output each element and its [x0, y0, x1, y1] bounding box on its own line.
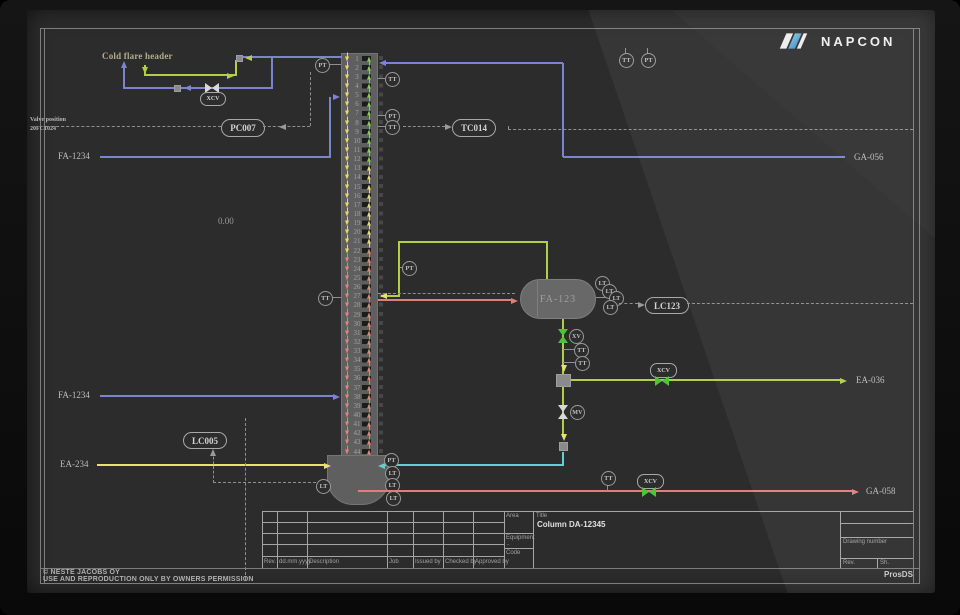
xv-valve-tag[interactable]: XV — [569, 329, 584, 344]
signal-line — [378, 293, 515, 294]
temperature-transmitter[interactable]: TT — [575, 356, 590, 371]
pipe — [123, 87, 273, 89]
tray-upflow-arrow — [367, 120, 371, 125]
flow-arrow-right — [227, 73, 234, 79]
tray-number: 13 — [350, 164, 364, 172]
issued-header: Issued by — [415, 559, 441, 565]
signal-line — [245, 418, 246, 580]
tray-number: 33 — [350, 347, 364, 355]
pipe — [398, 242, 400, 297]
tray-upflow-arrow — [367, 211, 371, 216]
tray-upflow-arrow — [367, 56, 371, 61]
tray-number: 43 — [350, 438, 364, 446]
pipe — [385, 62, 563, 64]
tray-upflow-arrow — [367, 349, 371, 354]
pipe-node — [559, 442, 568, 451]
tray-upflow-arrow — [367, 321, 371, 326]
signal-line — [263, 126, 310, 127]
tray-upflow-arrow — [367, 294, 371, 299]
drum-seam — [537, 281, 538, 317]
titleblock-line — [504, 533, 534, 534]
tray-number: 22 — [350, 247, 364, 255]
pipe — [235, 60, 237, 76]
flow-arrow-right — [511, 298, 518, 304]
signal-line — [213, 482, 316, 483]
tray-number: 5 — [350, 91, 364, 99]
frame-left-inner — [44, 28, 45, 583]
pipe — [242, 56, 342, 58]
tray-number: 40 — [350, 411, 364, 419]
tray-number: 28 — [350, 301, 364, 309]
napcon-logo-text: NAPCON — [821, 34, 895, 49]
instrument-stub — [332, 297, 341, 298]
tray-upflow-arrow — [367, 312, 371, 317]
tray-upflow-arrow — [367, 138, 371, 143]
tray-number: 12 — [350, 155, 364, 163]
temperature-transmitter[interactable]: TT — [601, 471, 616, 486]
tray-upflow-arrow — [367, 367, 371, 372]
instrument-stub — [563, 349, 574, 350]
temperature-transmitter[interactable]: TT — [385, 120, 400, 135]
temperature-transmitter[interactable]: TT — [385, 72, 400, 87]
tray-upflow-arrow — [367, 376, 371, 381]
tray-number: 6 — [350, 100, 364, 108]
tray-upflow-arrow — [367, 193, 371, 198]
titleblock-line — [840, 523, 913, 524]
equipment-value: - — [507, 542, 509, 548]
level-transmitter[interactable]: LT — [316, 479, 331, 494]
titleblock-line — [262, 533, 504, 534]
pipe-node — [236, 55, 243, 62]
napcon-logo-icon — [775, 31, 813, 51]
tray-number: 2 — [350, 64, 364, 72]
pipe — [100, 395, 334, 397]
stream-label-ea234: EA-234 — [60, 459, 89, 469]
flow-arrow-down — [561, 434, 567, 441]
drawing-title: Column DA-12345 — [537, 520, 605, 529]
tray-number: 34 — [350, 356, 364, 364]
tray-number: 16 — [350, 192, 364, 200]
titleblock-line — [443, 511, 444, 568]
pipe — [329, 97, 331, 158]
tray-number: 11 — [350, 146, 364, 154]
tray-number: 17 — [350, 201, 364, 209]
controller-pc007[interactable]: PC007 — [221, 119, 265, 137]
flow-arrow-down — [561, 365, 567, 372]
tray-upflow-arrow — [367, 303, 371, 308]
titleblock-line — [504, 548, 534, 549]
tray-number: 4 — [350, 82, 364, 90]
pipe — [378, 299, 512, 301]
tray-upflow-arrow — [367, 221, 371, 226]
stream-label-fa1234-upper: FA-1234 — [58, 151, 90, 161]
pipe — [562, 63, 564, 157]
controller-lc005[interactable]: LC005 — [183, 432, 227, 449]
signal-line — [619, 303, 638, 304]
pipe — [97, 464, 324, 466]
tray-number: 29 — [350, 311, 364, 319]
napcon-logo: NAPCON — [775, 31, 895, 51]
signal-line — [213, 452, 214, 483]
tray-number: 8 — [350, 119, 364, 127]
tray-number: 42 — [350, 429, 364, 437]
titleblock-line — [840, 511, 841, 568]
tray-number: 30 — [350, 320, 364, 328]
flow-arrow-left — [245, 55, 252, 61]
titleblock-line — [262, 522, 504, 523]
tray-number: 9 — [350, 128, 364, 136]
job-header: Job — [389, 559, 399, 565]
tray-upflow-arrow — [367, 74, 371, 79]
tray-number: 26 — [350, 283, 364, 291]
signal-line — [403, 126, 445, 127]
zero-value: 0.00 — [218, 216, 234, 226]
tray-upflow-arrow — [367, 248, 371, 253]
controller-lc123[interactable]: LC123 — [645, 297, 689, 314]
tray-number: 15 — [350, 183, 364, 191]
copyright-line2: USE AND REPRODUCTION ONLY BY OWNERS PERM… — [43, 576, 254, 583]
titleblock-line — [262, 556, 504, 557]
mv-valve-tag[interactable]: MV — [570, 405, 585, 420]
tray-number: 7 — [350, 109, 364, 117]
tray-number: 31 — [350, 329, 364, 337]
instrument-stub — [329, 64, 341, 65]
xv-valve[interactable] — [558, 329, 568, 343]
flow-arrow-right — [333, 394, 340, 400]
tray-number: 19 — [350, 219, 364, 227]
titleblock-line — [262, 511, 913, 512]
tray-upflow-arrow — [367, 449, 371, 454]
signal-line — [46, 126, 221, 127]
tray-upflow-arrow — [367, 65, 371, 70]
tray-upflow-arrow — [367, 93, 371, 98]
screen-glare-upper — [27, 10, 935, 593]
sheet-label: Sh. — [880, 560, 889, 566]
code-label: Code — [506, 550, 520, 556]
system-name: ProsDS — [884, 570, 913, 579]
ea036-xcv-valve[interactable] — [655, 376, 669, 386]
equipment-label: Equipment — [506, 535, 535, 541]
tray-number: 18 — [350, 210, 364, 218]
tray-number: 24 — [350, 265, 364, 273]
frame-right-inner — [913, 28, 914, 583]
flow-arrow-left — [379, 60, 386, 66]
dcs-screen: NAPCON 123456789101112131415161718192021… — [27, 10, 935, 593]
tray-upflow-arrow — [367, 102, 371, 107]
cold-flare-header-label: Cold flare header — [102, 51, 173, 61]
signal-arrow-left — [279, 124, 286, 130]
tray-upflow-arrow — [367, 394, 371, 399]
titleblock-line — [877, 558, 878, 568]
tray-number: 35 — [350, 365, 364, 373]
titleblock-line — [277, 511, 278, 568]
tray-number: 23 — [350, 256, 364, 264]
tray-upflow-arrow — [367, 83, 371, 88]
reflux-drum-fa123[interactable]: FA-123 — [520, 279, 596, 319]
pressure-transmitter[interactable]: PT — [641, 53, 656, 68]
tray-upflow-arrow — [367, 330, 371, 335]
flow-arrow-right — [333, 94, 340, 100]
flare-xcv-tag[interactable]: XCV — [200, 92, 226, 106]
tray-number: 21 — [350, 237, 364, 245]
tray-upflow-arrow — [367, 440, 371, 445]
frame-top — [40, 28, 920, 29]
tray-upflow-arrow — [367, 129, 371, 134]
titleblock-line — [262, 544, 504, 545]
tray-upflow-arrow — [367, 111, 371, 116]
tray-upflow-arrow — [367, 239, 371, 244]
tray-upflow-arrow — [367, 257, 371, 262]
flow-arrow-right — [852, 489, 859, 495]
titleblock-line — [262, 511, 263, 568]
tray-upflow-arrow — [367, 358, 371, 363]
flow-arrow-right — [840, 378, 847, 384]
tray-upflow-arrow — [367, 339, 371, 344]
signal-arrow-right — [445, 124, 452, 130]
tray-number: 20 — [350, 228, 364, 236]
signal-arrow-up — [210, 449, 216, 456]
tray-upflow-arrow — [367, 230, 371, 235]
tray-number: 3 — [350, 73, 364, 81]
pressure-transmitter[interactable]: PT — [402, 261, 417, 276]
tray-number: 27 — [350, 292, 364, 300]
tray-upflow-arrow — [367, 403, 371, 408]
pipe — [398, 241, 548, 243]
tray-number: 25 — [350, 274, 364, 282]
pipe — [100, 156, 330, 158]
tray-number: 38 — [350, 393, 364, 401]
titleblock-line — [413, 511, 414, 568]
tray-upflow-arrow — [367, 147, 371, 152]
area-label: Area — [506, 513, 519, 519]
tray-upflow-arrow — [367, 184, 371, 189]
tray-number: 10 — [350, 137, 364, 145]
tray-number: 32 — [350, 338, 364, 346]
tray-number: 37 — [350, 384, 364, 392]
tray-number: 36 — [350, 374, 364, 382]
tray-upflow-arrow — [367, 202, 371, 207]
tray-upflow-arrow — [367, 275, 371, 280]
tray-stack: 1234567891011121314151617181920212223242… — [342, 54, 377, 456]
pipe — [144, 74, 237, 76]
flow-arrow-up — [121, 61, 127, 68]
tray-upflow-arrow — [367, 422, 371, 427]
tray-upflow-arrow — [367, 157, 371, 162]
valve-position-label: Valve position — [30, 117, 66, 123]
approved-header: Approved by — [475, 559, 509, 565]
pressure-transmitter[interactable]: PT — [315, 58, 330, 73]
rev-header: Rev. — [264, 559, 276, 565]
tray-upflow-arrow — [367, 285, 371, 290]
tray-number: 39 — [350, 402, 364, 410]
level-transmitter[interactable]: LT — [603, 300, 618, 315]
pipe — [563, 156, 845, 158]
signal-arrow-right — [638, 302, 645, 308]
ga058-xcv-valve[interactable] — [642, 487, 656, 497]
flow-arrow-right — [324, 463, 331, 469]
signal-line — [687, 303, 913, 304]
description-header: Description — [309, 559, 339, 565]
pipe — [271, 57, 273, 89]
checked-header: Checked by — [445, 559, 477, 565]
junction-box — [556, 374, 571, 387]
frame-bottom-inner — [40, 568, 920, 569]
stream-label-ea036: EA-036 — [856, 375, 885, 385]
stream-label-ga056: GA-056 — [854, 152, 884, 162]
screen-glare — [27, 10, 935, 593]
frame-bottom-outer — [40, 583, 920, 584]
drawing-number-label: Drawing number — [843, 539, 887, 545]
tray-upflow-arrow — [367, 166, 371, 171]
temperature-transmitter[interactable]: TT — [619, 53, 634, 68]
controller-tc014[interactable]: TC014 — [452, 119, 496, 137]
copyright-line1: © NESTE JACOBS OY — [43, 569, 120, 576]
flow-arrow-down — [142, 67, 148, 74]
stream-label-ga058: GA-058 — [866, 486, 896, 496]
titleblock-line — [840, 537, 913, 538]
monitor-bezel: NAPCON 123456789101112131415161718192021… — [0, 0, 960, 615]
pipe-node — [174, 85, 181, 92]
stream-label-fa1234-lower: FA-1234 — [58, 390, 90, 400]
title-label: Title — [536, 513, 547, 519]
signal-line — [310, 72, 311, 126]
rev-label: Rev. — [843, 560, 855, 566]
tray-upflow-arrow — [367, 266, 371, 271]
tray-upflow-arrow — [367, 413, 371, 418]
tray-number: 1 — [350, 55, 364, 63]
temperature-transmitter[interactable]: TT — [318, 291, 333, 306]
tray-downflow-arrow — [345, 449, 349, 454]
instrument-stub — [563, 362, 575, 363]
tray-number: 41 — [350, 420, 364, 428]
mv-valve[interactable] — [558, 405, 568, 419]
pipe — [571, 379, 841, 381]
frame-left-outer — [40, 28, 41, 583]
signal-line — [508, 129, 913, 130]
tray-upflow-arrow — [367, 175, 371, 180]
flow-arrow-left — [184, 85, 191, 91]
titleblock-line — [387, 511, 388, 568]
tray-upflow-arrow — [367, 385, 371, 390]
pipe — [382, 464, 563, 466]
frame-right-outer — [919, 28, 920, 583]
tray-upflow-arrow — [367, 431, 371, 436]
level-transmitter[interactable]: LT — [386, 491, 401, 506]
pipe — [546, 241, 548, 280]
tray-number: 14 — [350, 173, 364, 181]
pipe — [358, 490, 853, 492]
drawing-stage: NAPCON 123456789101112131415161718192021… — [27, 10, 935, 593]
date-header: dd.mm.yyyy — [279, 559, 311, 565]
